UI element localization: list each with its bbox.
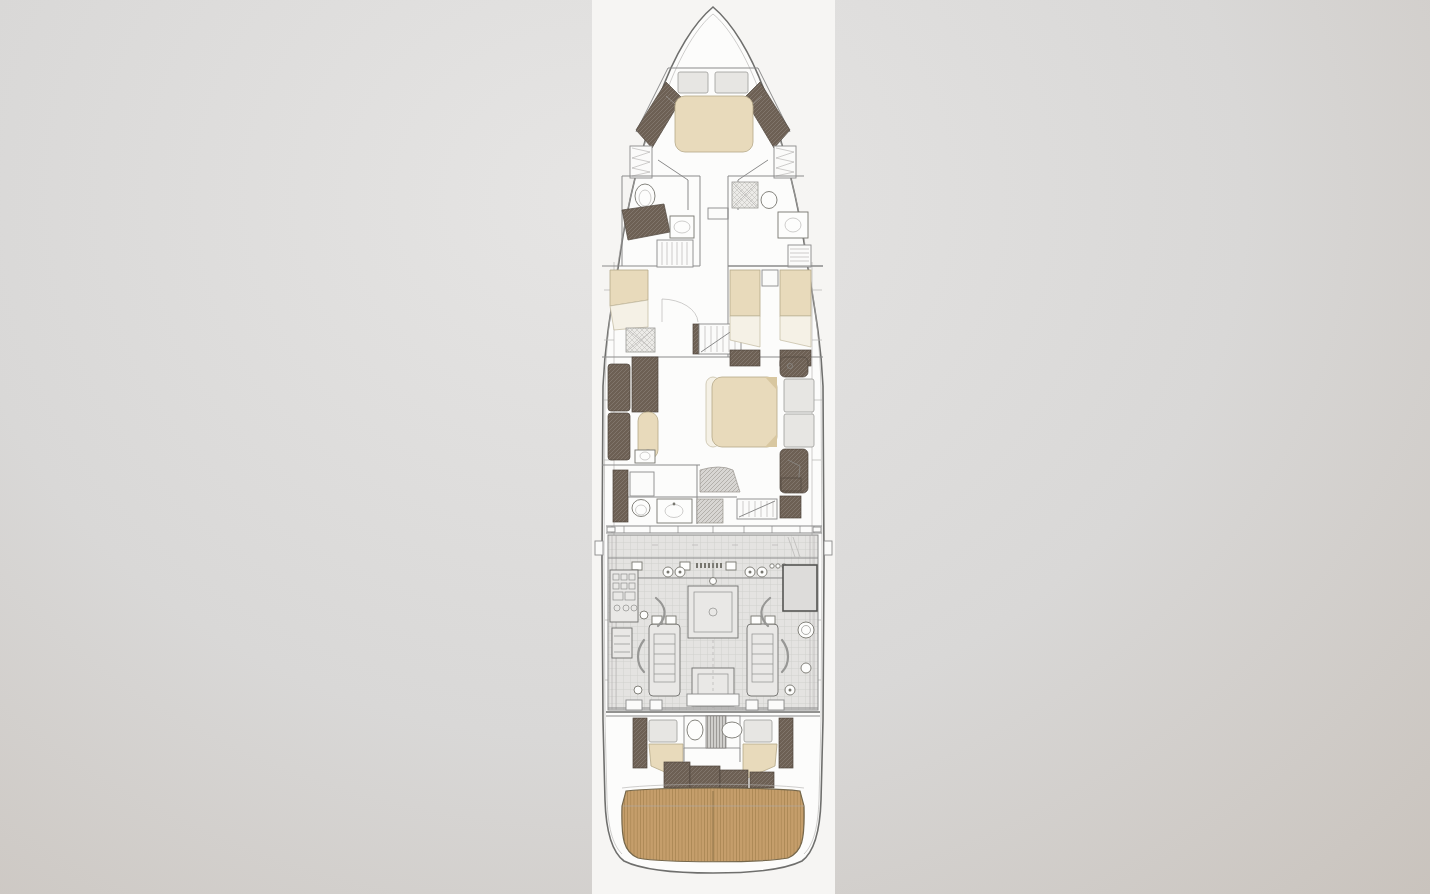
twin-bed-right [780,270,811,316]
deck-hatch-4 [768,700,784,710]
hatch-cross-panel [626,328,655,352]
master-sofa-aft [608,413,630,460]
toilet-port [635,184,655,208]
crew-step-1 [664,762,690,788]
stabilizer-fin-starboard [824,541,832,555]
engine-room [608,535,818,710]
crew-step-2 [690,766,720,788]
twin-bed-left [730,270,760,316]
vip-headboard-right [715,72,748,93]
toilet-starboard [761,192,777,209]
crew-step-3 [720,770,748,788]
master-sofa-fwd [608,364,630,411]
master-double-bed [712,377,777,447]
vip-double-bed [675,96,753,152]
master-wardrobe [632,357,658,412]
yacht-floorplan-drawing [592,0,835,894]
crew-wardrobe-port [633,718,647,768]
master-shower-tray [630,472,654,496]
crew-wardrobe-starboard [779,718,793,768]
washbasin-starboard [778,212,808,238]
master-toilet [632,500,650,517]
crew-toilet [687,720,703,740]
master-shower [697,499,723,523]
electrical-cabinet-starboard [783,565,817,611]
louver-locker-starboard [788,245,811,267]
swim-platform [622,784,804,862]
crew-washbasin [722,722,742,738]
master-bath-cabinet [613,470,628,522]
window-seat-aft [784,414,814,447]
stabilizer-fin-port [595,541,603,555]
slatted-bench-port [657,240,693,267]
twin-bed-left-footlocker [730,350,760,366]
nightstand-fwd [780,357,808,377]
companionway-coil-starboard [774,146,796,178]
deck-hatch-center [687,694,739,706]
crew-pillow-starboard [744,720,772,742]
deck-hatch-3 [746,700,758,710]
master-washbasin [657,499,692,523]
washbasin-port [670,216,694,238]
lower-staircase [737,499,777,519]
window-seat-fwd [784,379,814,412]
stair-cabinet-lower [780,496,801,518]
crew-bathroom [684,716,742,748]
floorplan-scan-strip [592,0,835,894]
vip-headboard-left [678,72,708,93]
companionway-coil-port [630,146,652,178]
deck-hatch-2 [650,700,662,710]
stair-cabinet-upper [781,478,801,491]
deck-hatch-1 [626,700,642,710]
crew-pillow-port [649,720,677,742]
twin-nightstand [762,270,778,286]
cabin-door [708,208,728,219]
